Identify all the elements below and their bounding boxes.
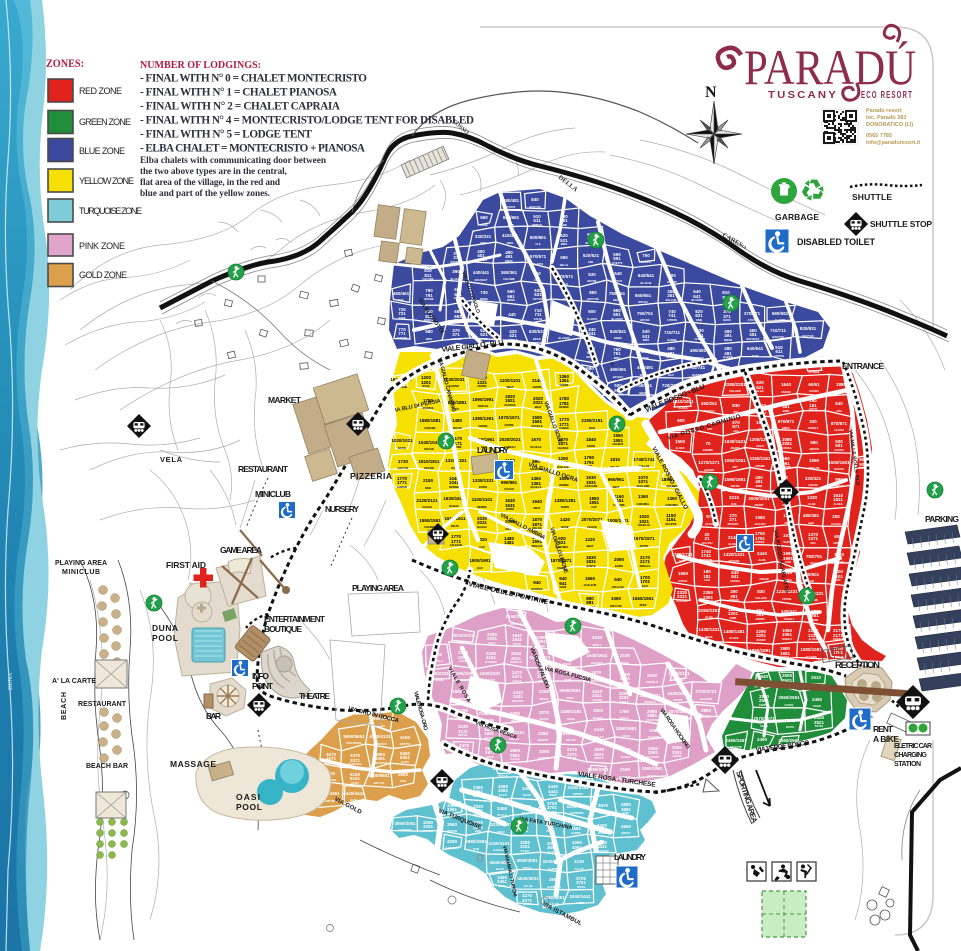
svg-text:451: 451 [749,332,757,337]
svg-text:2440: 2440 [594,727,605,732]
svg-text:ILLICO: ILLICO [499,793,508,797]
svg-text:CEDRE: CEDRE [504,423,513,427]
svg-text:1940: 1940 [532,499,543,504]
svg-text:1640: 1640 [781,382,792,387]
svg-text:ALBI: ALBI [785,560,791,564]
svg-text:the two above types are in the: the two above types are in the central, [140,167,287,177]
svg-text:BEACH: BEACH [61,692,68,720]
svg-text:FASTE: FASTE [786,725,795,729]
svg-text:ECAILLE: ECAILLE [530,485,541,489]
svg-text:CACAO: CACAO [504,487,514,491]
svg-text:0565 7785: 0565 7785 [866,133,892,139]
svg-text:BELLE: BELLE [560,263,569,267]
svg-text:1740/1741: 1740/1741 [633,457,655,462]
svg-text:1080/1081: 1080/1081 [800,647,822,652]
svg-text:DESERT: DESERT [538,738,549,742]
svg-text:DELTA: DELTA [451,524,459,528]
svg-text:LAUNDRY: LAUNDRY [614,852,646,862]
svg-text:GOLD ZONE: GOLD ZONE [79,270,127,280]
svg-text:BRIO: BRIO [614,356,620,360]
svg-text:750/751: 750/751 [806,554,823,559]
svg-text:IGLOO: IGLOO [522,811,530,815]
svg-text:650/651: 650/651 [635,293,652,298]
svg-text:CLE: CLE [535,242,540,246]
svg-text:IDYLLE: IDYLLE [498,774,507,778]
svg-text:info@paraduresort.it: info@paraduresort.it [866,140,920,146]
svg-text:EPICE: EPICE [782,426,790,430]
svg-text:1570/1571: 1570/1571 [633,536,655,541]
svg-text:CLARTE: CLARTE [533,262,544,266]
svg-text:320/321: 320/321 [805,476,822,481]
svg-text:EBAT: EBAT [507,385,514,389]
svg-text:4290: 4290 [447,839,458,844]
svg-text:1390/1391: 1390/1391 [472,416,494,421]
svg-text:BRIO: BRIO [426,337,432,341]
svg-text:DECOR: DECOR [424,466,433,470]
svg-text:BLASON: BLASON [559,336,570,340]
svg-text:BRISE: BRISE [507,298,515,302]
svg-text:ECRIN: ECRIN [587,444,595,448]
svg-text:841: 841 [731,574,739,579]
svg-text:250: 250 [832,514,840,519]
svg-text:2280/2281: 2280/2281 [724,382,746,387]
svg-text:2411: 2411 [592,693,602,698]
svg-text:DANTE: DANTE [587,564,596,568]
svg-text:flat area of the village, in t: flat area of the village, in the red and [140,178,281,188]
svg-text:421: 421 [509,333,517,338]
svg-text:DIANE: DIANE [566,696,574,700]
svg-text:1061: 1061 [782,632,793,637]
svg-text:1270/1271: 1270/1271 [698,460,720,465]
svg-text:721: 721 [398,311,406,316]
svg-text:loc. Paradù 383: loc. Paradù 383 [866,115,906,121]
svg-text:DEDALE: DEDALE [640,564,651,568]
svg-text:ACACIA: ACACIA [831,522,841,526]
svg-text:491: 491 [505,254,513,259]
svg-text:2331: 2331 [677,594,688,599]
svg-text:DIANE: DIANE [567,717,575,721]
svg-text:2171: 2171 [640,559,651,564]
svg-text:1590/1591: 1590/1591 [724,477,746,482]
svg-text:DUNA: DUNA [8,672,14,690]
svg-text:ARA: ARA [836,409,842,413]
svg-text:750: 750 [642,253,650,258]
svg-text:2471: 2471 [512,674,523,679]
svg-text:650: 650 [480,215,488,220]
svg-text:ACACIA: ACACIA [834,428,844,432]
svg-text:ZONES:: ZONES: [46,58,84,70]
svg-text:CELERI: CELERI [587,525,597,529]
svg-text:751: 751 [613,351,621,356]
svg-text:DYNAMO: DYNAMO [485,660,497,664]
svg-text:ECLIPSE: ECLIPSE [665,522,676,526]
svg-text:3270: 3270 [539,710,550,715]
svg-text:DROLE: DROLE [594,756,603,760]
svg-text:1050/1051: 1050/1051 [724,458,746,463]
svg-text:4530/4531: 4530/4531 [517,876,539,881]
svg-text:GERBE: GERBE [672,754,681,758]
svg-text:2960: 2960 [701,708,712,713]
svg-text:2981: 2981 [647,713,658,718]
svg-text:VELA: VELA [160,455,183,464]
svg-text:BOUTIQUE: BOUTIQUE [264,624,302,634]
svg-text:1201: 1201 [728,611,739,616]
svg-text:RESTAURANT: RESTAURANT [238,464,289,474]
svg-text:BUSE: BUSE [561,525,568,529]
svg-text:771: 771 [398,331,406,336]
svg-text:ELETRIC CAR: ELETRIC CAR [894,743,932,750]
svg-text:840: 840 [531,197,539,202]
svg-text:SPEE: SPEE [640,603,647,607]
svg-text:3240: 3240 [592,635,603,640]
svg-text:DIABOLO: DIABOLO [457,640,469,644]
svg-text:640/641: 640/641 [747,346,764,351]
svg-text:590: 590 [560,255,568,260]
svg-text:ELBE: ELBE [809,502,816,506]
svg-text:DATTE: DATTE [398,446,407,450]
svg-text:ACAJOU: ACAJOU [755,522,766,526]
svg-text:711: 711 [534,312,542,317]
svg-text:1330: 1330 [807,495,818,500]
svg-text:GARDENIA: GARDENIA [398,828,412,832]
svg-text:2210: 2210 [729,495,740,500]
svg-text:STATION: STATION [894,761,921,768]
svg-text:CHEVRE: CHEVRE [397,336,408,340]
svg-text:HAIFA: HAIFA [401,760,409,764]
svg-text:1670/1671: 1670/1671 [498,415,520,420]
svg-text:1940/1941: 1940/1941 [586,653,608,658]
svg-text:BAR: BAR [206,711,221,721]
svg-text:1660: 1660 [585,576,596,581]
svg-text:511: 511 [775,349,783,354]
svg-text:1790: 1790 [619,709,630,714]
svg-text:COEUR: COEUR [759,577,768,581]
svg-text:3000: 3000 [593,708,604,713]
svg-text:BRUNE: BRUNE [640,318,649,322]
svg-text:DAIM: DAIM [560,585,567,589]
svg-text:CARAMEL: CARAMEL [637,502,650,506]
svg-text:1160/1161: 1160/1161 [750,456,771,461]
svg-text:AMANT: AMANT [730,446,740,450]
svg-text:480/481: 480/481 [803,513,820,518]
svg-text:BOUTON: BOUTON [772,335,783,339]
svg-text:21: 21 [704,536,710,541]
svg-text:3010/3011: 3010/3011 [452,633,474,638]
svg-text:DEDALE: DEDALE [532,544,543,548]
svg-text:ENGINE: ENGINE [703,448,713,452]
svg-text:1080: 1080 [755,515,766,520]
svg-text:INFINITI: INFINITI [447,829,457,833]
svg-text:600: 600 [677,418,685,423]
svg-text:ECRIN: ECRIN [479,485,487,489]
svg-text:COLLIER: COLLIER [729,389,741,393]
svg-text:ASTUCE: ASTUCE [533,297,544,301]
svg-text:PLAYING AREA: PLAYING AREA [55,560,107,567]
svg-text:AUBE: AUBE [751,354,759,358]
svg-text:440/441: 440/441 [473,270,490,275]
svg-text:1550/1551: 1550/1551 [419,518,441,523]
svg-text:1900/1901: 1900/1901 [469,558,491,563]
svg-text:IDEAL: IDEAL [498,884,506,888]
svg-text:COBALT: COBALT [784,617,795,621]
svg-text:CAP: CAP [479,545,485,549]
svg-text:GERBE: GERBE [673,698,682,702]
svg-text:DISABLED TOILET: DISABLED TOILET [797,237,876,247]
svg-text:BAIL: BAIL [398,298,404,302]
svg-text:HORTENSIA: HORTENSIA [346,741,361,745]
svg-text:1921: 1921 [505,398,516,403]
svg-text:3751: 3751 [547,805,558,810]
svg-text:ENCLOS: ENCLOS [809,466,820,470]
svg-text:ADAGIO: ADAGIO [834,467,844,471]
svg-text:IGLOO: IGLOO [523,902,531,906]
svg-text:1360: 1360 [638,494,649,499]
svg-text:3261: 3261 [520,844,531,849]
svg-text:2070/2071: 2070/2071 [581,517,603,522]
svg-text:CHALAND: CHALAND [637,484,650,488]
svg-text:GARBAGE: GARBAGE [775,212,819,222]
svg-text:CHEVRE: CHEVRE [451,337,462,341]
svg-text:2440: 2440 [757,551,768,556]
svg-text:60/61: 60/61 [808,382,820,387]
svg-text:1730: 1730 [398,459,409,464]
svg-text:2720/2721: 2720/2721 [695,689,717,694]
svg-text:850: 850 [589,290,597,295]
svg-text:830: 830 [757,589,765,594]
svg-text:1060: 1060 [611,596,622,601]
svg-text:N: N [705,84,717,101]
svg-text:2510: 2510 [811,675,822,680]
svg-text:BRIO: BRIO [507,241,513,245]
svg-text:540: 540 [614,271,622,276]
svg-text:DROLE: DROLE [592,643,601,647]
svg-text:POOL: POOL [152,633,178,643]
svg-text:CACTUS: CACTUS [398,466,409,470]
svg-text:3451: 3451 [497,879,508,884]
svg-text:CEDRE: CEDRE [477,384,486,388]
svg-text:ALOES: ALOES [834,502,843,506]
svg-text:EBAT: EBAT [535,405,542,409]
svg-text:521: 521 [480,332,488,337]
svg-text:NUMBER OF LODGINGS:: NUMBER OF LODGINGS: [140,59,261,71]
svg-text:DROLE: DROLE [539,697,548,701]
svg-text:DANUBE: DANUBE [424,426,435,430]
svg-text:640/641: 640/641 [638,273,655,278]
svg-text:2490: 2490 [757,737,768,742]
svg-text:GALOP: GALOP [574,867,583,871]
svg-text:ECAILLE: ECAILLE [530,445,541,449]
svg-text:2151: 2151 [486,655,497,660]
svg-text:AMANT: AMANT [754,503,764,507]
svg-text:1430/1431: 1430/1431 [698,627,720,632]
svg-text:960/961: 960/961 [608,477,625,482]
svg-text:DIABLE: DIABLE [619,700,629,704]
svg-text:TURQUOISE ZONE: TURQUOISE ZONE [79,206,142,216]
svg-text:3960: 3960 [447,822,458,827]
svg-text:CEDRE: CEDRE [559,383,568,387]
svg-text:FACETTE: FACETTE [730,745,742,749]
svg-text:490/491: 490/491 [637,365,654,370]
svg-text:590/591: 590/591 [772,311,789,316]
svg-text:DECAN: DECAN [424,447,433,451]
svg-text:ECRIN: ECRIN [615,564,623,568]
svg-text:GAZON: GAZON [510,757,519,761]
svg-text:ENTRANCE: ENTRANCE [842,361,884,371]
svg-text:GAME AREA: GAME AREA [220,545,262,555]
svg-text:ESSOR: ESSOR [756,638,765,642]
svg-text:480/481: 480/481 [503,198,520,203]
svg-text:HABIT: HABIT [351,781,359,785]
svg-text:CLARTE: CLARTE [641,260,652,264]
svg-text:DUNA: DUNA [152,623,178,633]
svg-text:1701: 1701 [640,579,651,584]
svg-text:BISON: BISON [724,338,732,342]
svg-text:GRAFE: GRAFE [567,756,576,760]
svg-text:ALOES: ALOES [679,406,688,410]
svg-text:DENISE: DENISE [477,505,487,509]
svg-text:DIABOLO: DIABOLO [646,680,658,684]
svg-text:DIAMANT: DIAMANT [512,699,524,703]
svg-text:EAU: EAU [642,584,648,588]
svg-text:NURSERY: NURSERY [325,504,359,514]
svg-text:ERABLE: ERABLE [704,409,715,413]
svg-text:1570: 1570 [531,437,542,442]
svg-text:1810: 1810 [610,457,621,462]
svg-text:DAIS: DAIS [425,486,431,490]
svg-text:COLLIER: COLLIER [755,596,767,600]
svg-text:ECO RESORT: ECO RESORT [861,89,913,101]
svg-text:GAULE: GAULE [619,716,628,720]
svg-text:2280: 2280 [538,731,549,736]
svg-text:2120/2121: 2120/2121 [416,498,438,503]
svg-text:EMIR: EMIR [756,484,763,488]
svg-text:BATEAU: BATEAU [613,375,624,379]
svg-text:BLASON: BLASON [612,317,623,321]
svg-text:1480: 1480 [452,418,463,423]
svg-text:ARA: ARA [810,541,816,545]
svg-text:1771: 1771 [397,480,408,485]
svg-text:Paradù resort: Paradù resort [866,108,902,114]
svg-text:BRAVO: BRAVO [638,300,647,304]
svg-text:CHAUME: CHAUME [503,277,515,281]
svg-text:IPSOS: IPSOS [577,885,585,889]
svg-text:SHUTTLE STOP: SHUTTLE STOP [870,219,932,229]
svg-text:EMIR: EMIR [730,616,737,620]
svg-text:2031: 2031 [477,520,488,525]
svg-text:1590: 1590 [809,458,820,463]
svg-text:PARADÚ: PARADÚ [744,39,916,95]
svg-text:CALECHE: CALECHE [450,543,463,547]
svg-text:ACCORD: ACCORD [805,655,817,659]
svg-text:GERBE: GERBE [647,774,656,778]
svg-text:ELOGE: ELOGE [729,636,738,640]
svg-text:3050/3051: 3050/3051 [394,821,416,826]
svg-text:ANCRE: ANCRE [730,484,739,488]
svg-text:DATTE: DATTE [640,544,649,548]
svg-text:RED ZONE: RED ZONE [79,86,122,96]
svg-text:2980/2981: 2980/2981 [465,839,487,844]
svg-text:POINT: POINT [252,681,274,691]
svg-text:1630/1631: 1630/1631 [724,439,746,444]
svg-text:AGORA: AGORA [730,579,740,583]
svg-text:COEUR: COEUR [808,483,817,487]
svg-text:CEDRE: CEDRE [532,385,541,389]
svg-text:- FINAL WITH N° 1 = CHALET PIA: - FINAL WITH N° 1 = CHALET PIANOSA [140,87,337,99]
svg-text:CORAIL: CORAIL [782,446,792,450]
svg-text:1951: 1951 [589,500,600,505]
svg-text:2020/2021: 2020/2021 [499,437,521,442]
svg-text:BLAGUE: BLAGUE [641,281,652,285]
svg-text:341: 341 [588,331,596,336]
svg-text:CIEL: CIEL [588,260,594,264]
svg-text:4150: 4150 [400,735,411,740]
svg-text:651: 651 [613,312,621,317]
svg-text:IGLOO: IGLOO [523,793,531,797]
svg-text:710/711: 710/711 [664,330,681,335]
svg-text:260/261: 260/261 [701,401,718,406]
svg-text:1361: 1361 [559,378,570,383]
svg-text:CIME: CIME [480,241,487,245]
svg-text:DIETE: DIETE [621,661,629,665]
svg-text:BARON: BARON [723,355,733,359]
svg-text:ELAN: ELAN [705,615,712,619]
svg-text:ART: ART [732,465,738,469]
svg-text:2100: 2100 [620,653,631,658]
svg-text:DIGITAL: DIGITAL [458,733,469,737]
svg-text:BEACH BAR: BEACH BAR [86,763,128,770]
svg-text:ALOES: ALOES [676,446,685,450]
svg-text:580: 580 [425,329,433,334]
svg-text:PIZZERIA: PIZZERIA [350,471,392,481]
svg-text:1990/1991: 1990/1991 [472,397,494,402]
svg-text:CITRON: CITRON [667,318,677,322]
svg-text:Elba chalets with communicatin: Elba chalets with communicating door bet… [140,156,327,166]
svg-text:5151: 5151 [350,776,361,781]
svg-text:BRISE: BRISE [480,297,488,301]
svg-text:AUBE: AUBE [480,337,488,341]
svg-text:EBAT: EBAT [534,506,541,510]
svg-text:GITAN: GITAN [622,734,630,738]
svg-text:DECAN: DECAN [452,426,461,430]
svg-text:401: 401 [755,479,763,484]
svg-text:- ELBA CHALET = MONTECRISTO +: - ELBA CHALET = MONTECRISTO + PIANOSA [140,143,365,155]
svg-text:GAUFFRE: GAUFFRE [646,718,659,722]
svg-text:BRIO: BRIO [643,338,649,342]
svg-text:2061: 2061 [648,750,659,755]
svg-text:BARBE: BARBE [667,338,676,342]
svg-text:CITRON: CITRON [774,354,784,358]
svg-text:4130: 4130 [574,859,585,864]
svg-text:1151: 1151 [666,517,676,522]
svg-text:4081: 4081 [498,788,509,793]
svg-text:BLUE ZONE: BLUE ZONE [79,146,125,156]
svg-text:HUTTE: HUTTE [576,901,585,905]
svg-text:ESPACE: ESPACE [729,598,740,602]
svg-text:SPONGE: SPONGE [808,370,819,374]
svg-text:ENVERS: ENVERS [728,522,739,526]
svg-text:ENTERTAINMENT: ENTERTAINMENT [264,614,326,624]
svg-text:COBALT: COBALT [782,637,793,641]
svg-text:ATOUT: ATOUT [507,205,516,209]
svg-text:990/991: 990/991 [501,480,518,485]
svg-text:IPSOS: IPSOS [549,793,557,797]
svg-text:1791: 1791 [833,650,844,655]
svg-text:AUBE: AUBE [398,316,406,320]
svg-text:EBAT: EBAT [587,544,594,548]
svg-text:CHAUME: CHAUME [422,277,434,281]
svg-text:600: 600 [588,309,596,314]
svg-text:ECORCE: ECORCE [504,403,515,407]
